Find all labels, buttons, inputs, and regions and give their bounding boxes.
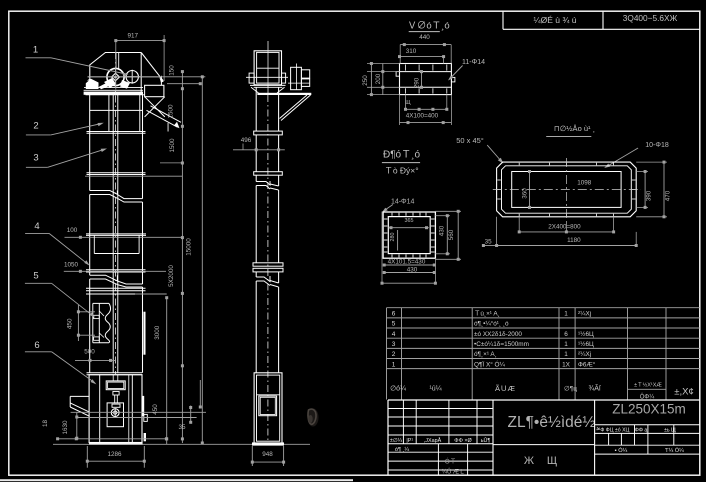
svg-text:3Q400−5.6XЖ: 3Q400−5.6XЖ bbox=[623, 13, 678, 23]
svg-text:35: 35 bbox=[485, 239, 493, 246]
svg-text:1: 1 bbox=[564, 351, 568, 358]
svg-text:¹Ф ФЦ ±ó XЦ: ¹Ф ФЦ ±ó XЦ bbox=[599, 428, 630, 434]
svg-text:917: 917 bbox=[127, 33, 138, 40]
svg-text:Q¶Ї X° Ó¼: Q¶Ї X° Ó¼ bbox=[474, 359, 506, 368]
svg-text:ó¶ ¸¼: ó¶ ¸¼ bbox=[395, 447, 410, 453]
svg-text:Щ: Щ bbox=[547, 455, 557, 467]
svg-text:²¼Xj: ²¼Xj bbox=[578, 351, 591, 358]
svg-text:440: 440 bbox=[419, 34, 430, 41]
svg-text:ÓＴ: ÓＴ bbox=[445, 457, 457, 466]
svg-text:2: 2 bbox=[392, 351, 396, 358]
svg-text:1500: 1500 bbox=[168, 104, 175, 119]
svg-text:▪ Ó¼: ▪ Ó¼ bbox=[615, 447, 628, 454]
svg-text:4: 4 bbox=[392, 331, 396, 338]
svg-text:1: 1 bbox=[564, 311, 568, 318]
svg-text:ΦΦ ×Ø: ΦΦ ×Ø bbox=[454, 438, 472, 444]
svg-text:Щ: Щ bbox=[405, 100, 411, 106]
svg-text:±,X¢: ±,X¢ bbox=[674, 387, 693, 398]
svg-text:290: 290 bbox=[414, 77, 421, 88]
svg-text:±ó XX2δ1δ-2000: ±ó XX2δ1δ-2000 bbox=[474, 331, 522, 338]
svg-text:5X2000: 5X2000 bbox=[168, 265, 175, 287]
svg-text:500: 500 bbox=[84, 349, 95, 356]
svg-text:560: 560 bbox=[448, 229, 455, 240]
svg-text:1500: 1500 bbox=[169, 138, 176, 153]
svg-text:ΦΦ ą: ΦΦ ą bbox=[635, 428, 648, 434]
svg-text:I: I bbox=[166, 121, 169, 135]
svg-text:948: 948 bbox=[262, 451, 273, 458]
svg-text:1286: 1286 bbox=[107, 451, 122, 458]
svg-text:ó¶¸•¼°ó¹¸ ¸ó: ó¶¸•¼°ó¹¸ ¸ó bbox=[474, 320, 509, 328]
svg-text:10-Φ18: 10-Φ18 bbox=[645, 142, 669, 149]
svg-text:∅ó¼: ∅ó¼ bbox=[390, 386, 406, 393]
svg-text:50 x 45°: 50 x 45° bbox=[456, 136, 484, 145]
svg-text:430: 430 bbox=[439, 225, 446, 236]
svg-text:ZL250X15m: ZL250X15m bbox=[612, 402, 686, 417]
svg-text:5: 5 bbox=[33, 271, 38, 282]
svg-text:ó¶¸×¹ A¸: ó¶¸×¹ A¸ bbox=[474, 351, 497, 358]
svg-text:15000: 15000 bbox=[186, 238, 193, 256]
svg-text:1630: 1630 bbox=[62, 420, 69, 435]
svg-text:Ð¶óＴ¸ó: Ð¶óＴ¸ó bbox=[383, 150, 420, 161]
svg-text:1: 1 bbox=[33, 45, 38, 56]
svg-text:¼ØÉ ù ¾ ú: ¼ØÉ ù ¾ ú bbox=[534, 15, 577, 25]
svg-text:Ｖ∅óＴ¸ó: Ｖ∅óＴ¸ó bbox=[407, 21, 449, 32]
svg-text:|P¹: |P¹ bbox=[406, 438, 413, 444]
svg-text:Ж: Ж bbox=[524, 455, 534, 467]
svg-text:365: 365 bbox=[405, 218, 414, 224]
svg-text:Ｔò Ðý×°: Ｔò Ðý×° bbox=[384, 166, 418, 176]
svg-text:4: 4 bbox=[34, 221, 39, 232]
svg-text:¹½6Ц: ¹½6Ц bbox=[578, 330, 594, 338]
svg-text:ÃＵÆ: ÃＵÆ bbox=[495, 384, 516, 393]
svg-text:4X101.5=430: 4X101.5=430 bbox=[388, 258, 426, 265]
svg-text:11-Φ14: 11-Φ14 bbox=[462, 59, 485, 66]
svg-text:150: 150 bbox=[169, 65, 176, 76]
svg-text:470: 470 bbox=[665, 190, 672, 201]
svg-text:±ь Щ: ±ь Щ bbox=[664, 428, 676, 434]
svg-text:1: 1 bbox=[564, 341, 568, 348]
svg-text:200: 200 bbox=[375, 73, 382, 84]
svg-text:1X: 1X bbox=[562, 361, 571, 368]
svg-text:310: 310 bbox=[406, 48, 417, 55]
svg-text:ьÛ¶: ьÛ¶ bbox=[481, 437, 491, 444]
svg-text:¼Û ÆＬ: ¼Û ÆＬ bbox=[442, 469, 465, 476]
svg-text:35: 35 bbox=[178, 424, 186, 431]
svg-text:450: 450 bbox=[67, 318, 74, 329]
svg-text:¾Ăſ: ¾Ăſ bbox=[588, 384, 601, 393]
svg-text:280: 280 bbox=[390, 233, 396, 242]
svg-text:¹ú¼: ¹ú¼ bbox=[429, 386, 441, 393]
svg-text:Ƭ¼ Ó¼: Ƭ¼ Ó¼ bbox=[665, 447, 684, 454]
svg-text:18: 18 bbox=[42, 420, 49, 428]
svg-text:3000: 3000 bbox=[154, 325, 161, 340]
svg-text:4X100=400: 4X100=400 bbox=[406, 112, 439, 119]
svg-text:3: 3 bbox=[392, 341, 396, 348]
svg-text:²¼Xj: ²¼Xj bbox=[578, 311, 591, 318]
svg-text:5: 5 bbox=[392, 321, 396, 328]
svg-text:¹½6Ц: ¹½6Ц bbox=[578, 340, 594, 348]
svg-text:1180: 1180 bbox=[567, 237, 581, 244]
svg-text:1050: 1050 bbox=[64, 261, 79, 268]
svg-text:Ф6Æ°: Ф6Æ° bbox=[578, 360, 596, 368]
svg-text:360: 360 bbox=[522, 188, 529, 199]
svg-text:450: 450 bbox=[152, 404, 159, 415]
svg-text:390: 390 bbox=[646, 190, 653, 201]
svg-text:496: 496 bbox=[241, 137, 252, 144]
svg-text:•C±ó¼1δ=1500mm: •C±ó¼1δ=1500mm bbox=[474, 341, 529, 348]
svg-text:±Ｔ½X¹XÆ: ±Ｔ½X¹XÆ bbox=[634, 382, 662, 389]
svg-text:1098: 1098 bbox=[577, 180, 592, 187]
svg-text:ZL¶•ê½ìdé½¸: ZL¶•ê½ìdé½¸ bbox=[507, 414, 600, 431]
svg-text:250: 250 bbox=[362, 75, 369, 86]
svg-text:,JXapÅ: ,JXapÅ bbox=[424, 437, 442, 444]
svg-text:Ｔù¸×¹ A¸: Ｔù¸×¹ A¸ bbox=[474, 311, 500, 318]
svg-text:6: 6 bbox=[392, 311, 396, 318]
svg-text:6: 6 bbox=[564, 331, 568, 338]
svg-text:1: 1 bbox=[392, 361, 396, 368]
svg-text:2: 2 bbox=[33, 121, 38, 132]
svg-text:3: 3 bbox=[33, 152, 38, 163]
svg-text:6: 6 bbox=[34, 340, 39, 351]
svg-text:∅¶ц: ∅¶ц bbox=[564, 386, 577, 393]
svg-text:2X400=800: 2X400=800 bbox=[548, 224, 581, 231]
svg-text:14-Φ14: 14-Φ14 bbox=[391, 198, 415, 205]
svg-text:100: 100 bbox=[67, 227, 78, 234]
svg-text:±∅¼: ±∅¼ bbox=[390, 438, 403, 444]
svg-text:⊓∅½Åo ù¹ ¸: ⊓∅½Åo ù¹ ¸ bbox=[554, 124, 595, 133]
